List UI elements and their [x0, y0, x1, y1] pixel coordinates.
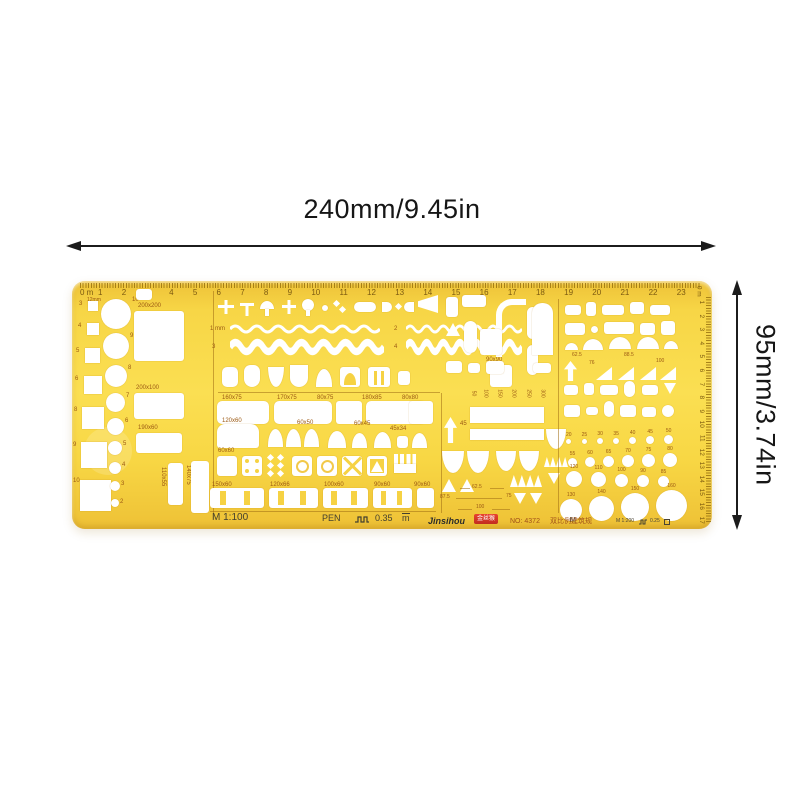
template-cutout: [464, 321, 477, 353]
template-cutout: [304, 429, 319, 447]
pen-width-label: 0.35: [375, 514, 393, 523]
ruler-number: 9: [288, 289, 292, 297]
template-cutout: [586, 302, 596, 316]
template-cutout: 60x50: [297, 420, 313, 426]
template-cutout: [374, 432, 391, 448]
template-cutout: [267, 462, 274, 469]
template-cutout: [637, 337, 659, 349]
circle-cutout: [656, 490, 687, 521]
wave-line: [230, 323, 380, 335]
scale-number: 100: [483, 389, 488, 397]
template-cutout: [586, 407, 598, 415]
template-cutout: [220, 491, 226, 505]
template-cutout: 62.5: [572, 353, 582, 358]
template-cutout: [134, 311, 184, 361]
template-cutout: [664, 383, 676, 394]
ruler-number: 7: [240, 289, 244, 297]
template-cutout: 80: [663, 447, 677, 467]
template-cutout: 45x34: [390, 426, 406, 432]
template-cutout: [321, 460, 334, 473]
template-cutout: [230, 326, 380, 332]
diameter-label: 150: [631, 487, 639, 492]
ruler-zero: 0 m: [80, 289, 93, 297]
ruler-number: 5: [698, 355, 705, 359]
template-cutout: [242, 456, 262, 476]
template-cutout: [277, 454, 284, 461]
template-cutout: [394, 464, 416, 473]
template-cutout: [382, 302, 392, 312]
template-cutout: [618, 367, 634, 380]
template-cutout: [374, 371, 377, 385]
template-cutout: [355, 517, 369, 522]
template-cutout: [600, 385, 618, 395]
ruler-number: 11: [339, 289, 347, 297]
template-cutout: [328, 431, 346, 448]
template-cutout: [210, 488, 264, 508]
ruler-number: 18: [536, 289, 545, 297]
template-cutout: 7: [126, 393, 129, 399]
diameter-label: 35: [613, 432, 619, 437]
template-cutout: [101, 299, 131, 329]
template-cutout: [333, 300, 340, 307]
template-cutout: [191, 461, 209, 513]
template-cutout: [217, 456, 237, 476]
ruler-number: 8: [698, 396, 705, 400]
template-cutout: [323, 488, 368, 508]
template-cutout: [371, 461, 383, 472]
template-cutout: 100: [476, 505, 484, 510]
diameter-label: 130: [567, 493, 575, 498]
ruler-number: 1: [98, 289, 102, 297]
template-cutout: [296, 460, 309, 473]
template-cutout: 6: [125, 418, 128, 424]
template-cutout: [442, 451, 464, 473]
dimension-height-label: 95mm/3.74in: [744, 281, 786, 529]
template-cutout: 1234567891011121314151617: [696, 299, 706, 523]
template-cutout: [640, 323, 655, 335]
template-cutout: 50: [664, 429, 673, 444]
template-cutout: 9: [130, 333, 133, 339]
template-cutout: [397, 491, 402, 505]
template-cutout: [110, 481, 120, 491]
template-cutout: [510, 475, 542, 487]
diameter-label: 25: [582, 433, 588, 438]
template-cutout: [486, 361, 504, 374]
scale-number: 250: [525, 389, 530, 397]
ruler-number: 6: [698, 368, 705, 372]
template-cutout: [564, 385, 578, 395]
template-cutout: [398, 371, 410, 385]
scale-number: 200: [511, 389, 516, 397]
ruler-number: 19: [564, 289, 573, 297]
scale-number: 300: [539, 389, 544, 397]
template-cutout: [409, 401, 433, 424]
template-cutout: [444, 417, 457, 443]
template-cutout: 5: [76, 348, 79, 354]
circle-cutout: [613, 438, 619, 444]
template-cutout: 160: [656, 484, 687, 521]
circle-cutout: [566, 439, 571, 444]
template-cutout: 2: [394, 326, 397, 332]
template-cutout: [530, 493, 542, 504]
diameter-label: 120: [570, 465, 578, 470]
ruler-number: 8: [264, 289, 268, 297]
template-cutout: 3: [79, 301, 82, 307]
template-cutout: [583, 339, 603, 350]
ruler-number: 3: [698, 328, 705, 332]
template-cutout: 60x45: [354, 421, 370, 427]
template-cutout: [373, 488, 412, 508]
dimension-width-label: 240mm/9.45in: [72, 194, 712, 225]
template-cutout: [217, 424, 259, 448]
template-cutout: [103, 333, 129, 359]
template-cutout: [404, 302, 414, 312]
template-cutout: [564, 361, 577, 381]
template-cutout: [292, 456, 312, 476]
template-cutout: [136, 289, 152, 300]
template-cutout: [395, 303, 402, 310]
template-cutout: [442, 479, 456, 492]
template-cutout: [66, 241, 81, 251]
template-cutout: [519, 451, 539, 471]
template-cutout: [368, 367, 390, 387]
template-cutout: 25: [582, 433, 588, 444]
diameter-label: 65: [606, 450, 612, 455]
ruler-number: 4: [698, 341, 705, 345]
ruler-zero: 0 m: [695, 286, 702, 297]
template-cutout: [564, 405, 580, 417]
template-cutout: 3: [121, 481, 124, 487]
template-cutout: [596, 367, 612, 380]
template-cutout: [470, 407, 544, 423]
template-cutout: 75: [506, 494, 512, 499]
template-cutout: [351, 491, 357, 505]
brand-name: Jinsihou: [428, 517, 465, 526]
template-cutout: [736, 293, 738, 517]
template-cutout: 9: [73, 442, 76, 448]
template-cutout: [467, 451, 489, 473]
template-cutout: [136, 433, 182, 453]
template-cutout: [218, 305, 234, 308]
circle-cutout: [629, 437, 636, 444]
template-cutout: [230, 343, 384, 352]
ruler-number: 1: [698, 300, 705, 304]
wave-line: [230, 338, 384, 356]
template-cutout: [446, 361, 462, 373]
template-cutout: [306, 310, 310, 316]
ruler-number: 2: [122, 289, 126, 297]
template-cutout: [446, 323, 460, 336]
circle-cutout: [621, 493, 649, 521]
template-cutout: [492, 509, 510, 510]
diameter-label: 140: [597, 490, 605, 495]
template-cutout: [662, 405, 674, 417]
diameter-label: 45: [647, 430, 653, 435]
template-cutout: [565, 305, 581, 315]
template-cutout: [470, 429, 544, 440]
unit-box-icon: [664, 519, 670, 525]
template-cutout: [460, 488, 470, 489]
template-cutout: [609, 337, 631, 349]
template-cutout: [544, 457, 568, 467]
template-cutout: 40: [629, 431, 636, 444]
template-cutout: [87, 323, 99, 335]
template-cutout: 62.5: [472, 485, 482, 490]
template-cutout: [245, 469, 249, 473]
ruler-number: 6: [217, 289, 221, 297]
template-cutout: 88.5: [624, 353, 634, 358]
template-cutout: [255, 469, 259, 473]
template-cutout: [565, 343, 578, 350]
template-cutout: [80, 480, 111, 511]
ruler-number: 11: [698, 435, 705, 442]
ruler-number: 13: [395, 289, 404, 297]
template-cutout: [85, 348, 100, 363]
template-cutout: [496, 451, 516, 471]
template-cutout: [624, 381, 635, 397]
template-cutout: 8: [128, 365, 131, 371]
template-cutout: [732, 280, 742, 295]
diameter-label: 75: [646, 448, 652, 453]
pen-label: PEN: [322, 514, 341, 523]
pen-width-secondary-label: 0.25: [650, 519, 660, 524]
template-cutout: [268, 367, 284, 387]
template-cutout: 10: [73, 478, 80, 484]
template-cutout: [354, 302, 376, 312]
template-cutout: [397, 436, 408, 448]
template-cutout: [316, 369, 332, 387]
template-cutout: [558, 299, 559, 513]
template-cutout: 95mm/3.74in: [750, 324, 781, 486]
diameter-label: 90: [640, 469, 646, 474]
template-cutout: 100: [656, 359, 664, 364]
template-cutout: [278, 491, 284, 505]
template-cutout: 30: [597, 432, 603, 444]
ruler-number: 7: [698, 382, 705, 386]
circle-grid-row: 20253035404550: [566, 429, 673, 444]
template-cutout: 6: [75, 376, 78, 382]
template-cutout: [108, 441, 122, 455]
template-cutout: [81, 442, 107, 468]
template-cutout: 150: [621, 487, 649, 521]
circle-cutout: [597, 438, 603, 444]
template-cutout: [642, 385, 658, 395]
template-cutout: [244, 491, 250, 505]
ruler-number: 17: [698, 516, 705, 523]
diameter-label: 80: [667, 447, 673, 452]
ruler-number: 14: [698, 475, 705, 482]
diameter-label: 20: [566, 433, 572, 438]
template-cutout: [381, 371, 384, 385]
template-cutout: [367, 456, 387, 476]
circle-cutout: [582, 439, 587, 444]
mid-scale-numbers: 50100150200250300: [470, 391, 546, 396]
diameter-label: 60: [587, 451, 593, 456]
ruler-number: 9: [698, 409, 705, 413]
template-cutout: [604, 401, 614, 417]
template-cutout: [480, 329, 502, 355]
template-cutout: [317, 456, 337, 476]
template-cutout: 190x60: [138, 425, 158, 431]
template-cutout: [591, 326, 598, 333]
template-cutout: [462, 295, 486, 307]
template-cutout: [584, 383, 594, 395]
circle-grid-row: 130140150160: [560, 484, 687, 521]
template-cutout: [88, 301, 98, 311]
template-cutout: 76: [589, 361, 595, 366]
template-cutout: [240, 303, 254, 306]
ruler-number: 20: [592, 289, 601, 297]
template-cutout: [168, 463, 183, 505]
template-cutout: [352, 433, 367, 448]
ruler-number: 22: [649, 289, 658, 297]
template-cutout: [514, 493, 526, 504]
template-cutout: 140: [589, 490, 614, 521]
template-cutout: [277, 462, 284, 469]
ruler-number: 21: [620, 289, 629, 297]
scale-number: 150: [497, 389, 502, 397]
template-cutout: 110x55: [160, 467, 166, 486]
circle-cutout: [646, 436, 654, 444]
template-cutout: [381, 491, 386, 505]
template-cutout: [630, 302, 644, 314]
ruler-number: 15: [698, 489, 705, 496]
template-cutout: 87.5: [440, 495, 450, 500]
template-cutout: [267, 455, 287, 477]
template-cutout: [604, 322, 634, 334]
model-number: NO: 4372: [510, 518, 540, 525]
template-cutout: 8: [74, 407, 77, 413]
template-cutout: 4: [122, 462, 125, 468]
ruler-number: 12: [367, 289, 376, 297]
template-cutout: 4: [78, 323, 81, 329]
template-cutout: [82, 407, 104, 429]
template-cutout: [109, 462, 121, 474]
ruler-number: 5: [193, 289, 197, 297]
unit-label: m: [402, 513, 410, 524]
template-cutout: [565, 323, 585, 335]
ruler-number: 10: [311, 289, 320, 297]
template-cutout: [602, 305, 624, 315]
template-cutout: 200x100: [136, 385, 159, 391]
template-cutout: [106, 393, 125, 412]
template-cutout: [111, 499, 119, 507]
ruler-number: 12: [698, 448, 705, 455]
template-cutout: [134, 393, 184, 419]
template-cutout: 45: [646, 430, 654, 444]
ruler-number: 13: [698, 462, 705, 469]
template-cutout: [244, 365, 260, 387]
pen-step-icon: [638, 518, 648, 525]
scale-number: 50: [470, 391, 475, 397]
template-cutout: [265, 309, 269, 316]
template-cutout: [268, 429, 283, 447]
template-cutout: [394, 454, 416, 476]
ruler-number: 15: [452, 289, 461, 297]
diameter-label: 110: [595, 466, 603, 471]
ruler-number: 14: [423, 289, 432, 297]
template-cutout: [322, 305, 328, 311]
template-cutout: [277, 470, 284, 477]
template-cutout: [458, 509, 472, 510]
stencil-template: 0 m 12mm 1234567891011121314151617181920…: [72, 281, 712, 529]
template-cutout: [267, 454, 274, 461]
template-cutout: 1 mm: [210, 326, 225, 332]
template-cutout: [639, 520, 647, 524]
template-cutout: [339, 306, 346, 313]
template-cutout: [418, 295, 438, 313]
brand-logo: 金丝猴: [474, 514, 498, 524]
diameter-label: 160: [667, 484, 675, 489]
template-cutout: 20: [566, 433, 572, 444]
template-cutout: [468, 363, 480, 373]
ruler-number: 2: [698, 314, 705, 318]
scale-secondary-label: M 1:200: [616, 519, 634, 524]
template-cutout: [650, 305, 670, 315]
template-cutout: [642, 407, 656, 417]
template-cutout: 2: [120, 499, 123, 505]
template-cutout: [267, 470, 274, 477]
circle-cutout: [589, 496, 614, 521]
ruler-number: 10: [698, 421, 705, 428]
template-cutout: [640, 367, 656, 380]
template-cutout: [456, 498, 502, 499]
diameter-label: 100: [617, 468, 625, 473]
circle-grid-row: 556065707580: [568, 447, 677, 467]
template-cutout: [446, 297, 458, 317]
template-cutout: 45: [460, 421, 467, 427]
diameter-label: 85: [661, 470, 667, 475]
template-cutout: 35: [613, 432, 619, 444]
diameter-label: 30: [597, 432, 603, 437]
ruler-number: 17: [508, 289, 517, 297]
template-cutout: [412, 433, 427, 448]
template-cutout: 3: [212, 344, 215, 350]
ruler-number: 23: [677, 289, 686, 297]
template-cutout: [546, 429, 566, 449]
template-cutout: [532, 303, 553, 355]
ruler-number: 16: [698, 503, 705, 510]
template-cutout: [260, 301, 274, 309]
template-cutout: [290, 365, 308, 387]
template-cutout: [286, 429, 301, 447]
diameter-label: 40: [630, 431, 636, 436]
template-cutout: [218, 392, 440, 393]
template-cutout: [84, 376, 102, 394]
diameter-label: 50: [666, 429, 672, 434]
template-cutout: [660, 367, 676, 380]
template-cutout: 5: [123, 441, 126, 447]
template-cutout: [661, 321, 675, 335]
template-cutout: 60x60: [218, 448, 234, 454]
template-cutout: [490, 488, 504, 489]
template-cutout: [394, 454, 416, 464]
template-cutout: [78, 245, 706, 247]
template-cutout: [533, 363, 551, 373]
template-cutout: [417, 488, 434, 508]
template-cutout: [300, 491, 306, 505]
template-cutout: [664, 341, 678, 349]
product-chinese-name: 双比例建筑规: [550, 518, 592, 525]
template-cutout: [701, 241, 716, 251]
template-cutout: [331, 491, 337, 505]
template-cutout: [732, 515, 742, 530]
template-cutout: [107, 418, 124, 435]
product-photo: 240mm/9.45in 95mm/3.74in 0 m 12mm 123456…: [0, 0, 800, 800]
pen-step-icon: [354, 514, 370, 524]
template-cutout: [706, 297, 711, 524]
template-cutout: [105, 365, 127, 387]
